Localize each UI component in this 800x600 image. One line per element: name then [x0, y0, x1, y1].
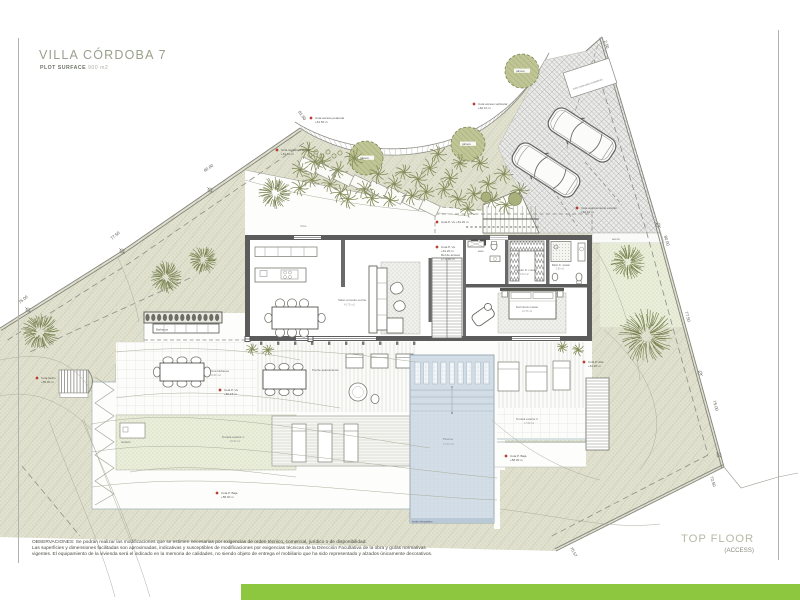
svg-text:17.60 m2: 17.60 m2: [524, 422, 535, 425]
svg-text:Salón-comedor-cocina: Salón-comedor-cocina: [338, 298, 366, 302]
svg-text:TOP FLOOR: TOP FLOOR: [681, 533, 754, 545]
svg-text:+61.20 m: +61.20 m: [588, 364, 601, 368]
svg-text:Vestidor D. master: Vestidor D. master: [514, 268, 537, 272]
svg-text:Baño D. master: Baño D. master: [552, 263, 570, 267]
svg-text:palmera: palmera: [516, 70, 525, 73]
svg-text:aseo: aseo: [478, 250, 484, 253]
svg-text:Barbacoa: Barbacoa: [156, 328, 168, 332]
svg-text:+58.30 m: +58.30 m: [221, 495, 234, 499]
svg-text:41.75 m2: 41.75 m2: [344, 303, 355, 307]
svg-text:borde rebosadero: borde rebosadero: [412, 520, 433, 524]
svg-text:lavadero: lavadero: [121, 440, 132, 444]
svg-text:vigentes. El equipamiento de l: vigentes. El equipamiento de la vivienda…: [32, 551, 432, 557]
svg-text:Las superficies y dimensiones: Las superficies y dimensiones facilitada…: [32, 545, 426, 551]
svg-text:+62.10 m: +62.10 m: [478, 106, 491, 110]
svg-text:16.75 m2: 16.75 m2: [522, 310, 533, 313]
svg-text:+/- 0.00 m: +/- 0.00 m: [441, 257, 455, 261]
svg-text:+60.15 m: +60.15 m: [224, 392, 237, 396]
svg-text:+62.10 m: +62.10 m: [581, 210, 594, 214]
svg-text:PLOT SURFACE 900 m2: PLOT SURFACE 900 m2: [40, 65, 108, 71]
svg-text:+61.50 m: +61.50 m: [281, 152, 294, 156]
svg-text:5.80 m2: 5.80 m2: [556, 269, 565, 271]
svg-text:+61.50 m: +61.50 m: [315, 120, 328, 124]
svg-text:+58.30 m: +58.30 m: [510, 458, 523, 462]
svg-text:Zona barbacoa: Zona barbacoa: [210, 369, 229, 373]
svg-text:26.40 m2: 26.40 m2: [230, 440, 241, 443]
svg-text:Terraza exterior 1: Terraza exterior 1: [222, 435, 244, 439]
svg-text:Porche aparcamiento: Porche aparcamiento: [312, 368, 339, 372]
svg-text:Cota P. viv +61.20 m: Cota P. viv +61.20 m: [441, 220, 469, 224]
svg-text:36.80 m2: 36.80 m2: [210, 373, 221, 377]
svg-text:+59.90 m: +59.90 m: [41, 380, 54, 384]
svg-text:VIAL.: VIAL.: [300, 224, 308, 228]
svg-text:acera: acera: [612, 237, 620, 241]
svg-text:27.50 m2: 27.50 m2: [443, 442, 454, 446]
svg-text:VILLA CÓRDOBA 7: VILLA CÓRDOBA 7: [39, 47, 167, 62]
svg-text:Terraza exterior 2: Terraza exterior 2: [516, 417, 538, 421]
svg-text:9.60 m2: 9.60 m2: [520, 273, 529, 276]
svg-text:palmera: palmera: [462, 143, 471, 146]
svg-text:OBSERVACIONES: Se podrán reali: OBSERVACIONES: Se podrán realizar las mo…: [32, 539, 367, 545]
svg-text:Dormitorio master: Dormitorio master: [516, 305, 538, 309]
svg-text:(ACCESS): (ACCESS): [724, 547, 754, 554]
